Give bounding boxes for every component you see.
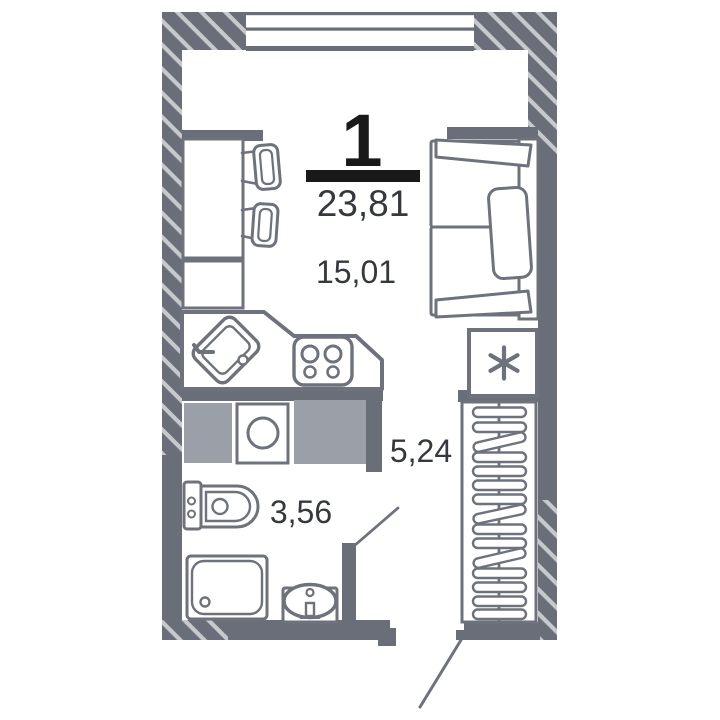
bathroom-east-wall-lower [342, 543, 356, 622]
apartment-number: 1 [341, 99, 382, 182]
sofa [431, 139, 538, 319]
stove-body [294, 337, 352, 385]
top-wall-left-block [162, 12, 246, 50]
bathroom-cabinet [294, 400, 366, 464]
bottom-wall-step [378, 628, 396, 646]
toilet-tank [184, 482, 201, 529]
bathroom-east-wall-upper [366, 401, 382, 472]
bathroom-cabinet [184, 403, 232, 463]
washbasin-pedestal [306, 603, 314, 616]
stove-icon [294, 337, 352, 385]
entrance-door-swing [420, 640, 461, 707]
hanger-icon [473, 597, 526, 607]
apartment-number-divider [306, 170, 420, 182]
washing-machine-icon [237, 404, 288, 463]
hanger-icon [473, 467, 526, 477]
hallway-storage [420, 330, 537, 707]
window-middle-line [246, 28, 474, 31]
hanger-icon [473, 481, 526, 491]
window-inner-line [246, 46, 474, 51]
floor-plan: 1 23,81 15,01 5,24 3,56 [0, 0, 720, 720]
right-wall-solid [538, 155, 557, 500]
living-area-label: 15,01 [316, 254, 396, 290]
hanger-icon [473, 453, 526, 463]
fridge-icon [469, 330, 537, 396]
bathroom-area-label: 3,56 [270, 494, 332, 530]
hanger-icon [473, 423, 526, 433]
table [183, 139, 243, 258]
right-ledge [447, 127, 538, 139]
toilet-button [188, 498, 195, 505]
burner [325, 346, 341, 362]
hallway-area-label: 5,24 [390, 433, 452, 469]
hanger-icon [473, 539, 526, 549]
chair [242, 144, 281, 190]
chair-back-inner [260, 150, 275, 185]
hanger-icon [473, 408, 526, 418]
burner [305, 367, 316, 378]
hanger-icon [473, 495, 526, 505]
shower-drain [201, 598, 210, 607]
entrance-threshold-notch [456, 630, 464, 640]
hanger-icon [473, 610, 526, 620]
total-area-label: 23,81 [317, 183, 410, 224]
wardrobe [462, 402, 536, 622]
table-cabinet [183, 261, 243, 308]
chair [242, 203, 278, 247]
wardrobe-bottom-wall [464, 622, 540, 640]
toilet-drain [213, 499, 228, 514]
hanger-icon [473, 569, 526, 579]
chair-back-inner [258, 209, 272, 242]
sofa-pillow [488, 187, 532, 279]
left-wall-hatched [162, 12, 182, 455]
window [246, 12, 474, 52]
shower-icon [187, 556, 267, 619]
bottom-wall-hatched-corner [162, 620, 228, 640]
hanger-icon [473, 525, 526, 535]
floor-plan-canvas: 1 23,81 15,01 5,24 3,56 [0, 0, 720, 720]
labels: 1 23,81 15,01 5,24 3,56 [270, 99, 452, 530]
bathroom-sink-icon [283, 585, 337, 623]
burner [328, 367, 339, 378]
left-wall-solid [162, 455, 182, 620]
washer-drum [248, 418, 278, 448]
washbasin-faucet [307, 589, 314, 596]
window-outer-line [246, 12, 474, 15]
bathroom-door-swing [354, 508, 398, 546]
hanger-icon [473, 583, 526, 593]
sink-drain [239, 356, 248, 365]
burner [302, 346, 318, 362]
toilet-button [188, 511, 195, 518]
toilet-icon [184, 482, 258, 529]
right-wall-hatched-lower [538, 500, 557, 640]
kitchen [182, 312, 382, 389]
bathroom-top-wall [182, 390, 383, 401]
